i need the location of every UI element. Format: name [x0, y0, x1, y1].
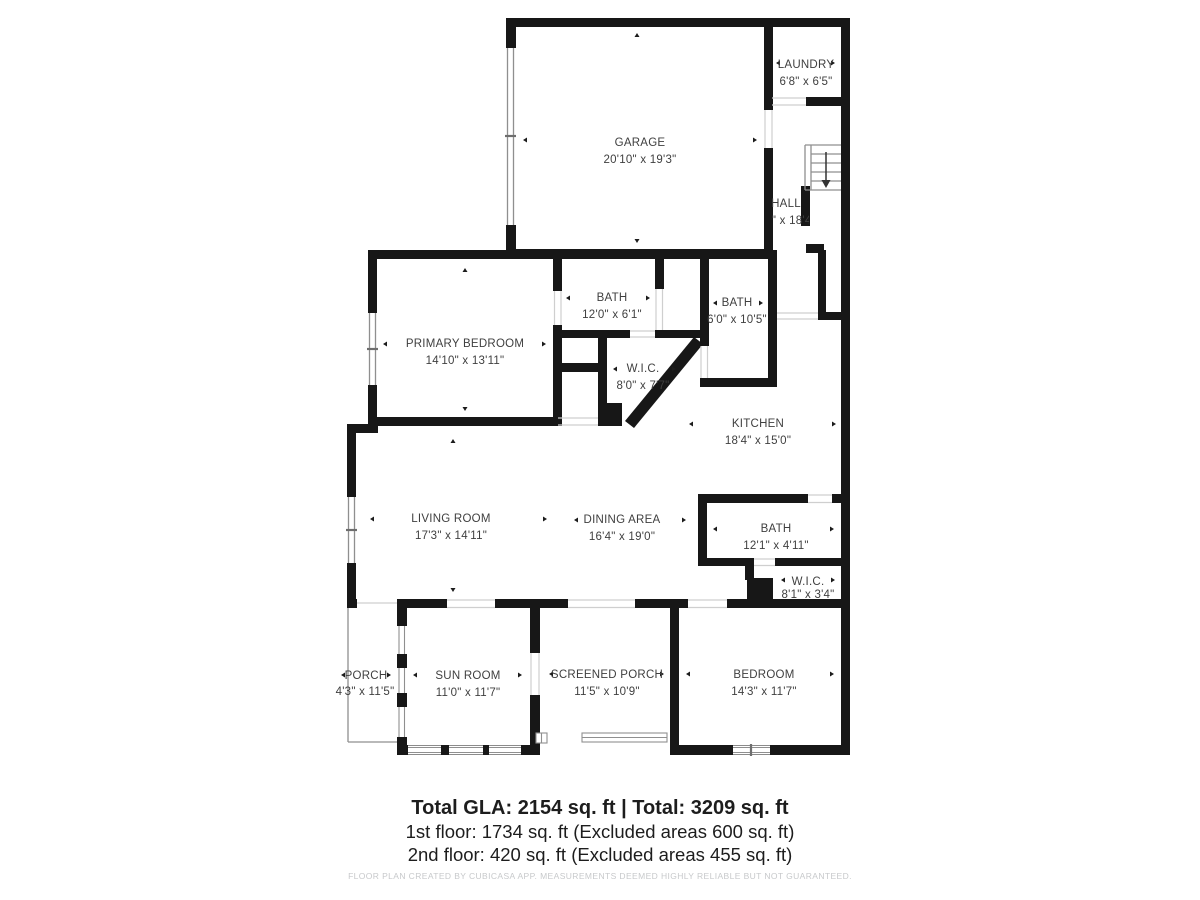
room-label-living-room: LIVING ROOM 17'3" x 14'11" [411, 513, 490, 542]
room-label-bath-lower: BATH 12'1" x 4'11" [743, 523, 808, 552]
room-name: W.I.C. [792, 576, 825, 588]
room-name: LIVING ROOM [411, 513, 490, 525]
room-label-kitchen: KITCHEN 18'4" x 15'0" [725, 418, 791, 447]
room-label-bath-upper: BATH 12'0" x 6'1" [582, 292, 642, 321]
room-dims: 11'5" x 10'9" [574, 686, 639, 698]
room-name: BATH [722, 297, 753, 309]
area-summary: Total GLA: 2154 sq. ft | Total: 3209 sq.… [0, 797, 1200, 866]
room-name: BATH [761, 523, 792, 535]
room-name: HALL [771, 198, 801, 210]
room-dims: 6'0" x 10'5" [707, 314, 767, 326]
room-label-porch: PORCH 4'3" x 11'5" [336, 670, 395, 698]
room-dims: 12'1" x 4'11" [743, 540, 808, 552]
room-dims: 6'8" x 6'5" [779, 76, 832, 88]
room-dims: 11'0" x 11'7" [436, 687, 501, 699]
room-label-laundry: LAUNDRY 6'8" x 6'5" [778, 59, 835, 88]
room-label-primary-bedroom: PRIMARY BEDROOM 14'10" x 13'11" [406, 338, 524, 367]
walls [347, 18, 850, 755]
room-name: GARAGE [615, 137, 666, 149]
room-label-garage: GARAGE 20'10" x 19'3" [604, 137, 677, 166]
room-name: SCREENED PORCH [551, 669, 663, 681]
room-name: SUN ROOM [435, 670, 500, 682]
room-name: BEDROOM [733, 669, 794, 681]
room-label-bedroom: BEDROOM 14'3" x 11'7" [731, 669, 796, 698]
room-dims: 17'3" x 14'11" [415, 530, 487, 542]
summary-first-floor-line: 1st floor: 1734 sq. ft (Excluded areas 6… [0, 820, 1200, 843]
summary-second-floor-line: 2nd floor: 420 sq. ft (Excluded areas 45… [0, 843, 1200, 866]
room-dims: 4'3" x 11'5" [336, 686, 395, 698]
room-name: KITCHEN [732, 418, 784, 430]
room-dims: 8'0" x 7'7" [616, 380, 669, 392]
room-dims: 16'4" x 19'0" [589, 531, 655, 543]
room-dims: 18'4" x 15'0" [725, 435, 791, 447]
room-name: W.I.C. [627, 363, 660, 375]
room-label-dining-area: DINING AREA 16'4" x 19'0" [584, 514, 661, 543]
room-dims: 14'3" x 11'7" [731, 686, 796, 698]
room-label-wic-small: W.I.C. 8'1" x 3'4" [781, 576, 834, 601]
room-dims: 14'10" x 13'11" [426, 355, 505, 367]
room-dims: 20'10" x 19'3" [604, 154, 677, 166]
stairs [805, 145, 841, 190]
room-dims: 8'1" x 3'4" [781, 589, 834, 601]
summary-total-line: Total GLA: 2154 sq. ft | Total: 3209 sq.… [0, 797, 1200, 820]
room-label-screened-porch: SCREENED PORCH 11'5" x 10'9" [551, 669, 663, 698]
room-name: BATH [597, 292, 628, 304]
room-label-sun-room: SUN ROOM 11'0" x 11'7" [435, 670, 500, 699]
room-dims: 12'0" x 6'1" [582, 309, 642, 321]
floor-plan-page: GARAGE 20'10" x 19'3" LAUNDRY 6'8" x 6'5… [0, 0, 1200, 900]
room-name: LAUNDRY [778, 59, 835, 71]
room-name: PORCH [345, 670, 388, 682]
stairs-down-arrow-icon [822, 152, 831, 188]
room-name: PRIMARY BEDROOM [406, 338, 524, 350]
room-name: DINING AREA [584, 514, 661, 526]
floorplan-svg: GARAGE 20'10" x 19'3" LAUNDRY 6'8" x 6'5… [0, 0, 1200, 900]
disclaimer-text: FLOOR PLAN CREATED BY CUBICASA APP. MEAS… [0, 871, 1200, 881]
